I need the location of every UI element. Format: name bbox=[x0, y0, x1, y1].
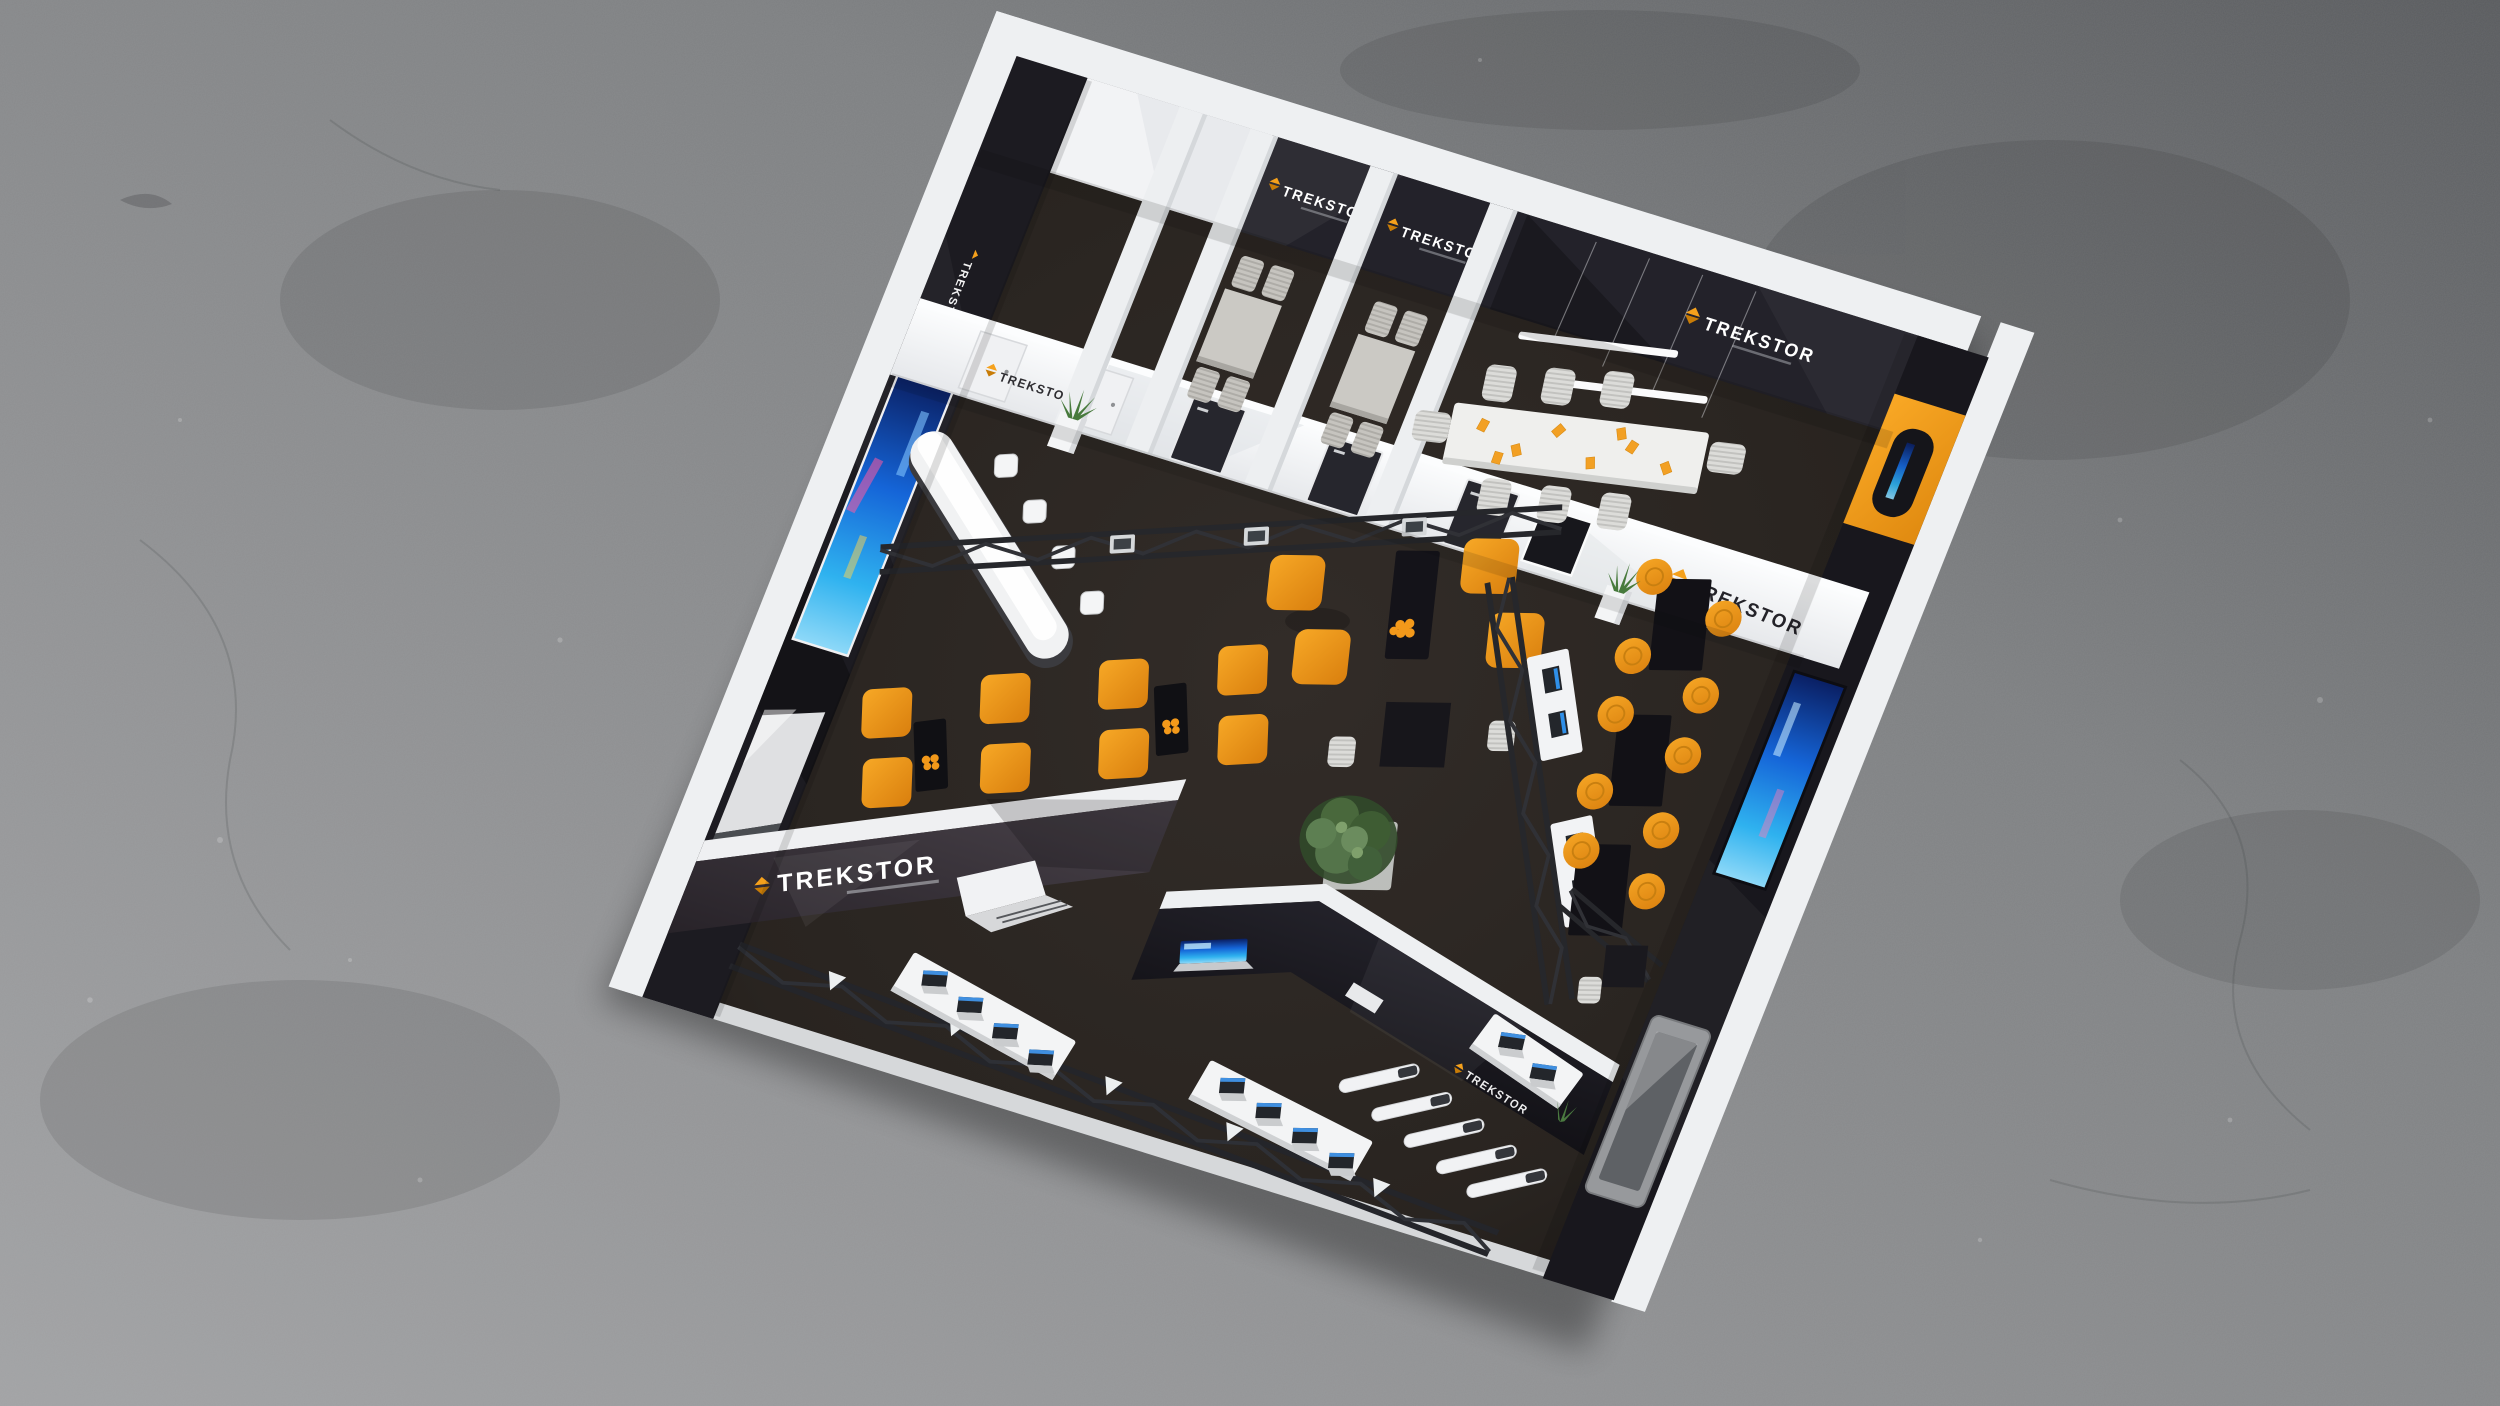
scene: TREKSTOR TREKSTOR TREKSTOR bbox=[0, 0, 2500, 1406]
orange-chair bbox=[861, 687, 913, 739]
orange-chair bbox=[1217, 644, 1269, 696]
orange-chair bbox=[861, 756, 913, 808]
orange-armchair bbox=[1291, 629, 1352, 685]
orange-chair bbox=[1217, 713, 1269, 765]
render-viewport: TREKSTOR TREKSTOR TREKSTOR bbox=[0, 0, 2500, 1406]
stool bbox=[1023, 499, 1047, 523]
chevron-laptop-graphic bbox=[1173, 938, 1255, 971]
stool bbox=[1080, 591, 1104, 615]
side-table bbox=[1154, 682, 1189, 756]
stool bbox=[994, 454, 1018, 478]
chair bbox=[1410, 409, 1452, 443]
black-table bbox=[1602, 945, 1648, 987]
chair bbox=[1705, 441, 1747, 475]
white-chair bbox=[1327, 736, 1357, 767]
side-table bbox=[913, 718, 948, 792]
orange-chair bbox=[979, 672, 1031, 724]
orange-chair bbox=[1098, 658, 1150, 710]
white-chair bbox=[1577, 977, 1603, 1004]
orange-chair bbox=[1098, 728, 1150, 780]
orange-chair bbox=[980, 742, 1032, 794]
orange-armchair bbox=[1265, 555, 1326, 611]
black-table bbox=[1379, 702, 1451, 768]
